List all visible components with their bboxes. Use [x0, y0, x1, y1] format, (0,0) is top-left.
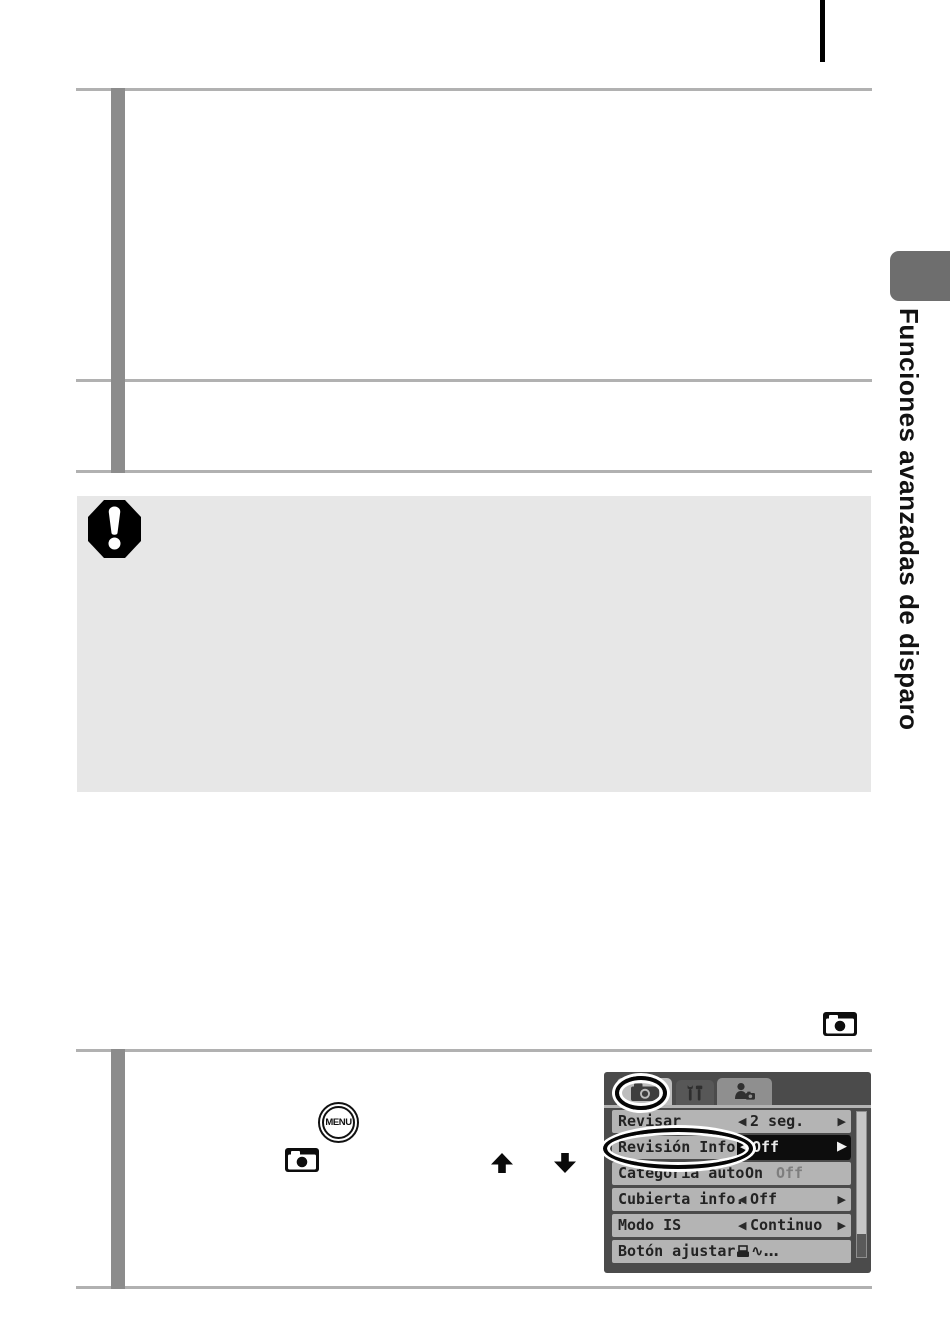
shooting-mode-icon — [823, 1011, 857, 1042]
lcd-scrollbar-thumb — [857, 1112, 866, 1234]
menu-item-label: Botón ajustar — [618, 1240, 735, 1263]
sidebar-tab — [890, 251, 950, 301]
menu-item-label: Cubierta info. — [618, 1188, 744, 1211]
menu-row-boton-ajustar: Botón ajustar ∿… — [612, 1240, 851, 1263]
tab-my-camera-menu — [717, 1078, 772, 1105]
tab-setup-menu — [676, 1080, 714, 1105]
annotation-oval-revision-info — [603, 1128, 753, 1169]
menu-button-inner-ring: MENU — [322, 1106, 355, 1139]
person-camera-icon — [733, 1082, 756, 1101]
page-edge-rule — [820, 0, 825, 62]
left-arrow-icon: ◀ — [738, 1110, 746, 1133]
menu-item-value: Continuo — [750, 1214, 822, 1237]
menu-button-label: MENU — [325, 1117, 351, 1128]
menu-row-cubierta-info: Cubierta info. ◀ Off ▶ — [612, 1188, 851, 1211]
step-bar-1 — [111, 88, 125, 473]
section-divider-3 — [76, 470, 872, 473]
left-arrow-icon: ◀ — [738, 1188, 746, 1211]
menu-item-label: Modo IS — [618, 1214, 681, 1237]
option-off: Off — [776, 1162, 803, 1185]
section-divider-1 — [76, 88, 872, 91]
right-arrow-icon: ▶ — [838, 1214, 846, 1237]
important-icon — [88, 500, 141, 563]
shooting-mode-icon — [285, 1146, 319, 1179]
left-arrow-icon: ◀ — [738, 1214, 746, 1237]
right-arrow-icon: ▶ — [838, 1188, 846, 1211]
sidebar-section-title: Funciones avanzadas de disparo — [893, 308, 924, 730]
note-box — [77, 496, 871, 792]
wrench-hammer-icon — [685, 1084, 705, 1102]
section-divider-2 — [76, 379, 872, 382]
annotation-oval-shooting-tab — [615, 1076, 667, 1110]
right-arrow-icon: ▶ — [838, 1110, 846, 1133]
down-arrow-icon — [553, 1152, 577, 1179]
menu-row-modo-is: Modo IS ◀ Continuo ▶ — [612, 1214, 851, 1237]
camera-menu-screenshot: Revisar ◀ 2 seg. ▶ Revisión Info. ◀ Off … — [604, 1072, 871, 1273]
manual-page: Funciones avanzadas de disparo MENU — [0, 0, 950, 1339]
right-arrow-icon: ▶ — [837, 1135, 847, 1158]
selected-value-highlight: ◀ Off ▶ — [737, 1135, 851, 1160]
section-divider-5 — [76, 1286, 872, 1289]
menu-item-value: Off — [750, 1188, 777, 1211]
menu-button-icon: MENU — [318, 1102, 359, 1143]
up-arrow-icon — [490, 1152, 514, 1179]
menu-item-value: Off — [752, 1135, 779, 1160]
lcd-scrollbar-track — [856, 1111, 867, 1258]
option-on: On — [745, 1162, 763, 1185]
menu-item-value: 2 seg. — [750, 1110, 804, 1133]
printer-share-icon — [736, 1244, 750, 1267]
menu-item-value-suffix: ∿… — [751, 1240, 779, 1263]
section-divider-4 — [76, 1049, 872, 1052]
step-bar-2 — [111, 1049, 125, 1289]
